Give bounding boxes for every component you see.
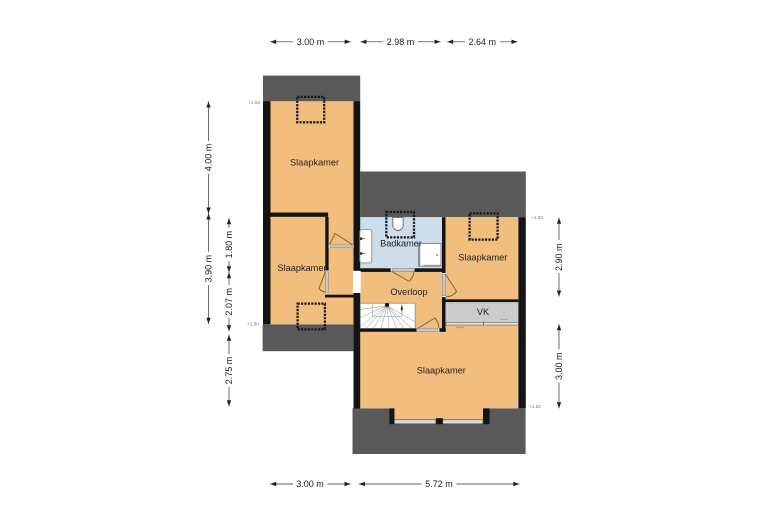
svg-text:2.90 m: 2.90 m — [554, 243, 564, 271]
svg-text:3.00 m: 3.00 m — [297, 37, 325, 47]
svg-text:1.80 m: 1.80 m — [224, 231, 234, 259]
svg-text:3.00 m: 3.00 m — [296, 479, 324, 489]
svg-text:+1.50: +1.50 — [248, 100, 260, 106]
svg-text:2.75 m: 2.75 m — [224, 357, 234, 385]
svg-text:+1.50: +1.50 — [531, 215, 543, 221]
svg-text:Badkamer: Badkamer — [380, 238, 422, 248]
svg-text:2.64 m: 2.64 m — [469, 37, 497, 47]
svg-text:+1.50: +1.50 — [529, 404, 541, 410]
svg-text:Overloop: Overloop — [390, 287, 427, 297]
svg-text:VK: VK — [477, 307, 490, 317]
svg-text:Slaapkamer: Slaapkamer — [417, 366, 466, 376]
svg-text:3.90 m: 3.90 m — [204, 255, 214, 283]
svg-text:Slaapkamer: Slaapkamer — [458, 252, 507, 262]
svg-text:Slaapkamer: Slaapkamer — [277, 263, 326, 273]
svg-text:3.00 m: 3.00 m — [554, 352, 564, 380]
svg-text:Slaapkamer: Slaapkamer — [290, 157, 339, 167]
svg-text:+1.50: +1.50 — [247, 322, 259, 328]
svg-text:2.07 m: 2.07 m — [224, 288, 234, 316]
svg-text:4.00 m: 4.00 m — [204, 144, 214, 172]
svg-text:5.72 m: 5.72 m — [425, 479, 453, 489]
svg-text:2.98 m: 2.98 m — [387, 37, 415, 47]
